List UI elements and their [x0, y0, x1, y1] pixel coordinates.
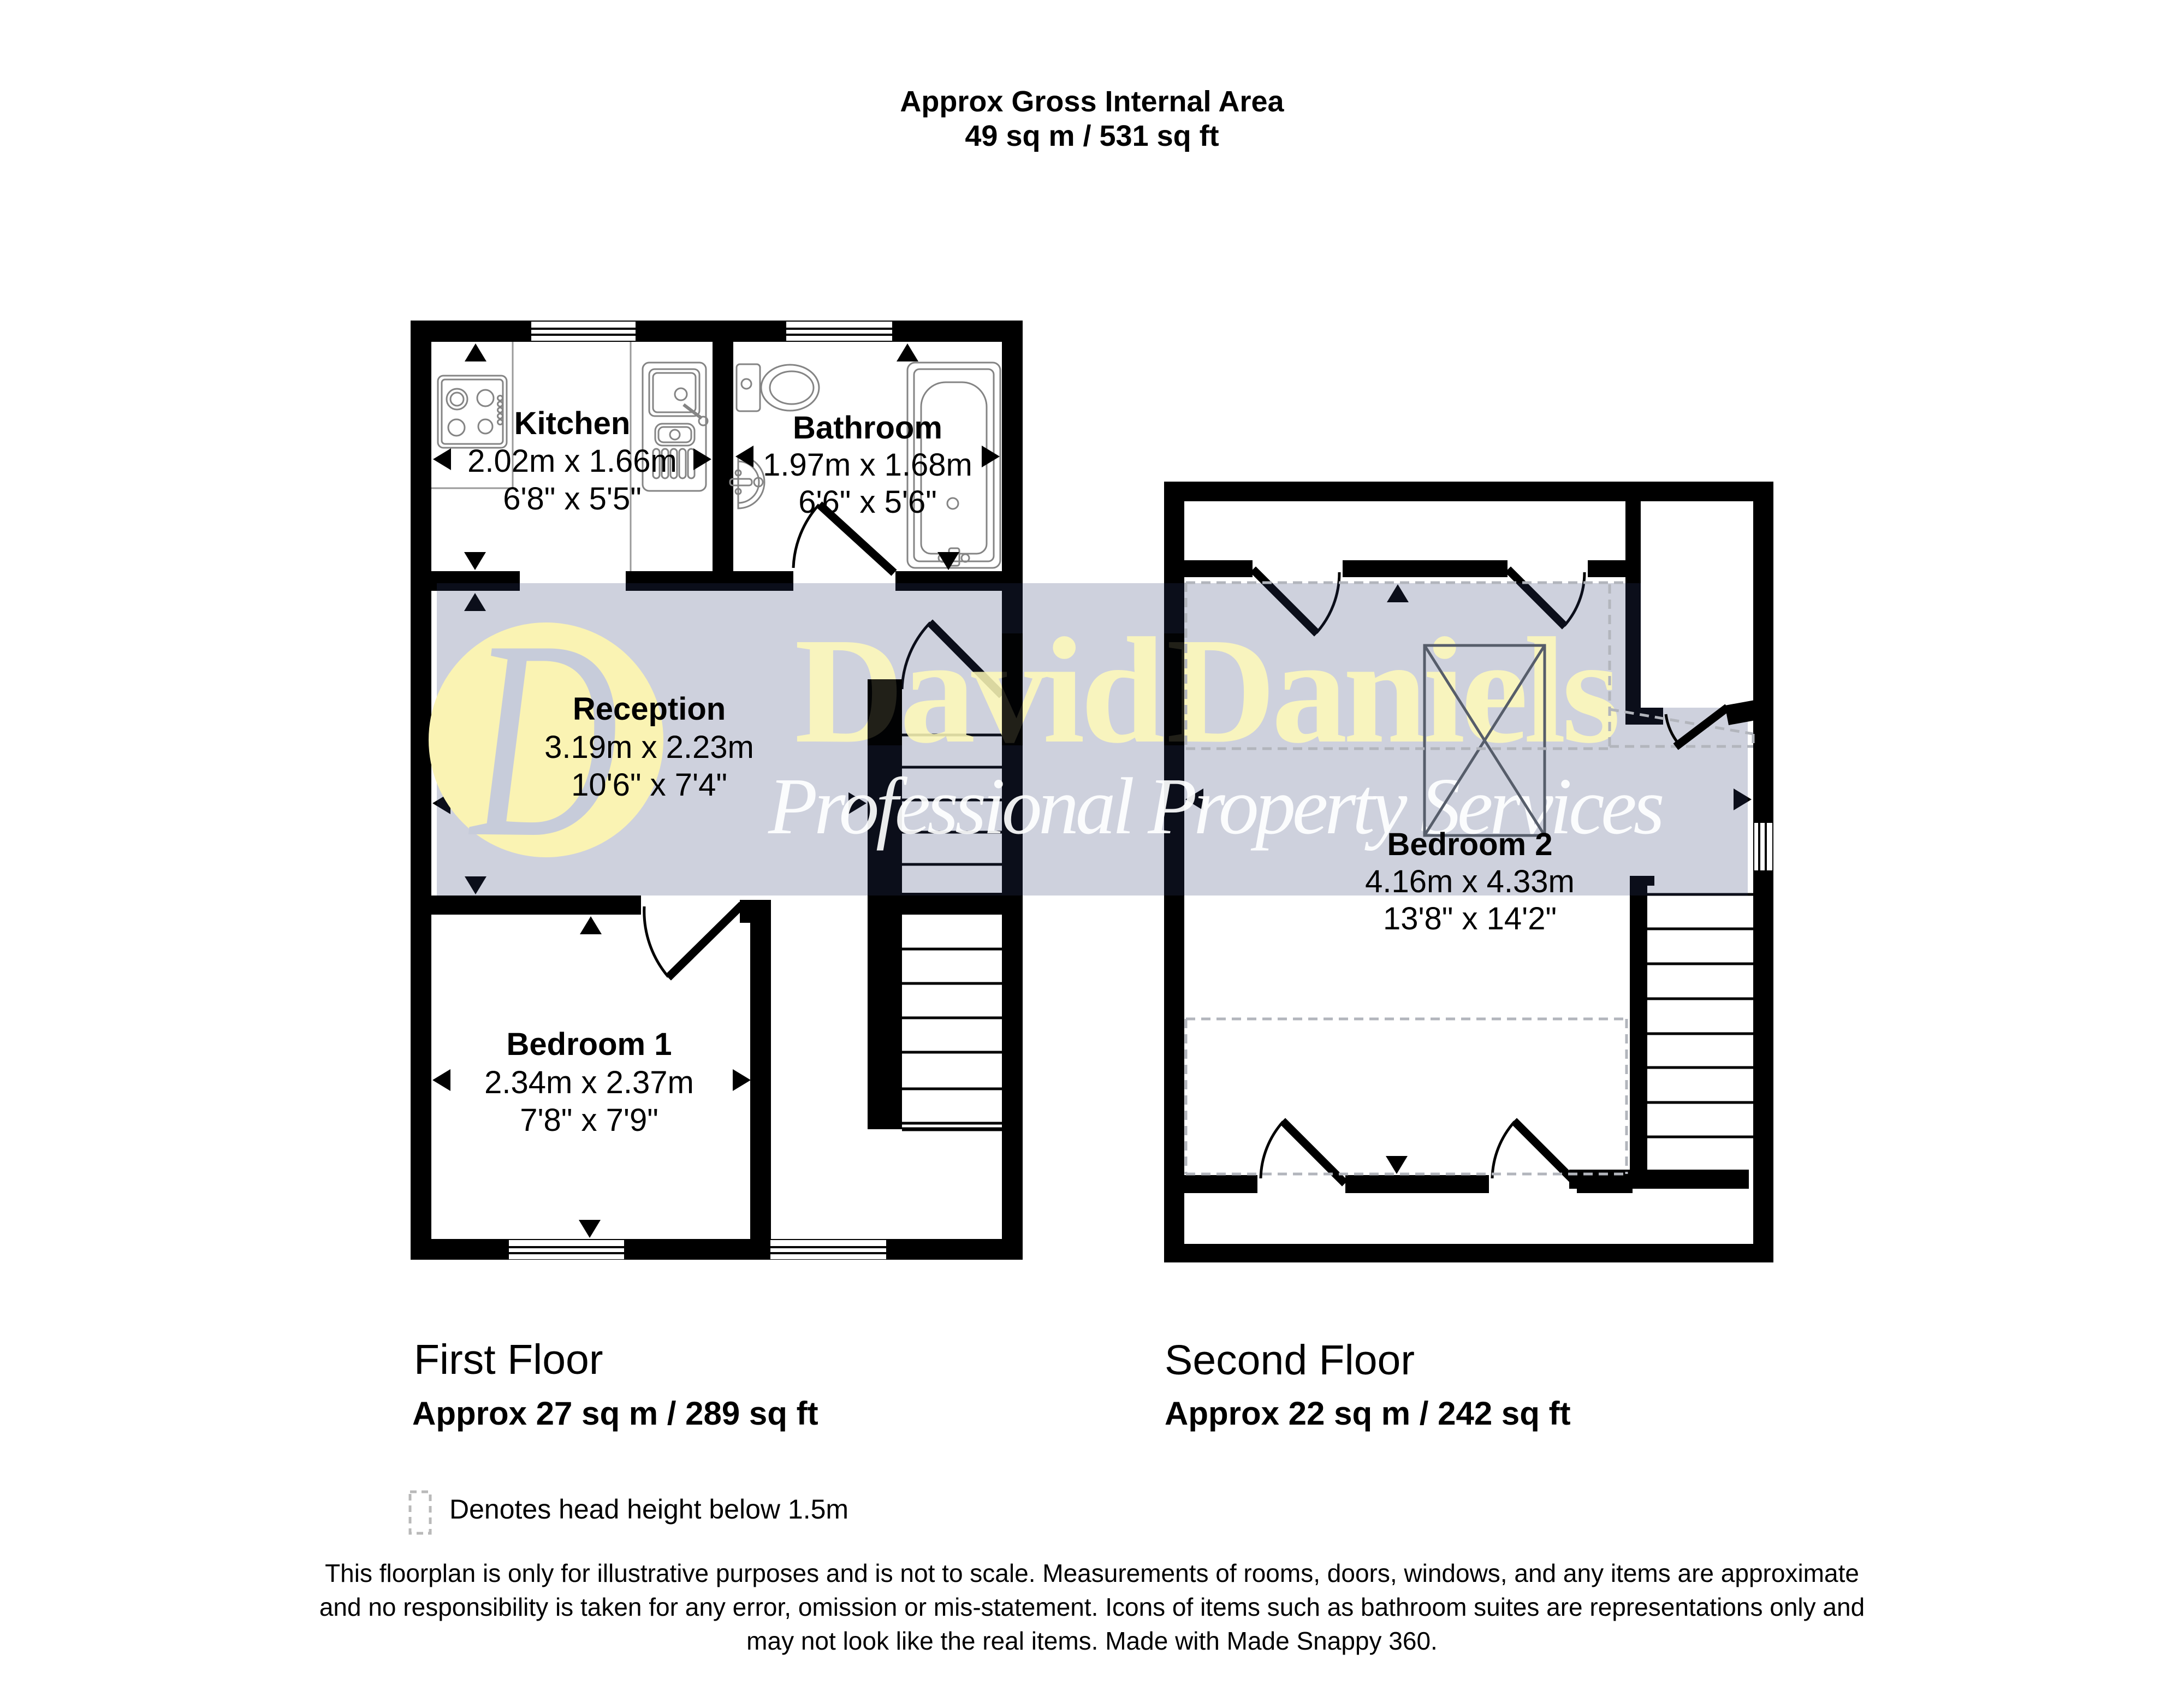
svg-text:This floorplan is only for ill: This floorplan is only for illustrative … — [325, 1559, 1859, 1587]
svg-text:Bathroom: Bathroom — [793, 410, 942, 446]
svg-text:Bedroom 2: Bedroom 2 — [1387, 827, 1553, 862]
svg-text:David: David — [794, 607, 1164, 775]
svg-text:2.02m x 1.66m: 2.02m x 1.66m — [467, 443, 677, 479]
svg-text:Approx 22 sq m / 242 sq ft: Approx 22 sq m / 242 sq ft — [1165, 1395, 1571, 1432]
svg-text:6'6" x 5'6": 6'6" x 5'6" — [798, 484, 937, 520]
svg-text:Reception: Reception — [573, 691, 726, 727]
svg-text:3.19m x 2.23m: 3.19m x 2.23m — [544, 730, 754, 765]
svg-text:2.34m x 2.37m: 2.34m x 2.37m — [484, 1065, 694, 1100]
svg-text:1.97m x 1.68m: 1.97m x 1.68m — [763, 447, 972, 483]
svg-text:49 sq m / 531 sq ft: 49 sq m / 531 sq ft — [965, 120, 1219, 152]
svg-text:13'8" x 14'2": 13'8" x 14'2" — [1383, 901, 1557, 936]
svg-text:and no responsibility is taken: and no responsibility is taken for any e… — [319, 1593, 1865, 1621]
svg-text:Kitchen: Kitchen — [514, 406, 631, 441]
svg-text:10'6" x 7'4": 10'6" x 7'4" — [571, 767, 727, 803]
svg-text:Approx Gross Internal Area: Approx Gross Internal Area — [900, 85, 1284, 118]
svg-text:7'8" x 7'9": 7'8" x 7'9" — [520, 1102, 658, 1138]
svg-text:First Floor: First Floor — [414, 1336, 603, 1383]
svg-text:4.16m x 4.33m: 4.16m x 4.33m — [1365, 864, 1575, 899]
svg-text:6'8" x 5'5": 6'8" x 5'5" — [503, 481, 642, 517]
svg-text:Second Floor: Second Floor — [1165, 1337, 1415, 1384]
svg-text:may not look like the real ite: may not look like the real items. Made w… — [746, 1627, 1438, 1655]
svg-text:Bedroom 1: Bedroom 1 — [507, 1027, 672, 1062]
svg-text:Denotes head height below 1.5m: Denotes head height below 1.5m — [449, 1494, 848, 1525]
svg-text:Approx 27 sq m / 289 sq ft: Approx 27 sq m / 289 sq ft — [412, 1395, 818, 1432]
